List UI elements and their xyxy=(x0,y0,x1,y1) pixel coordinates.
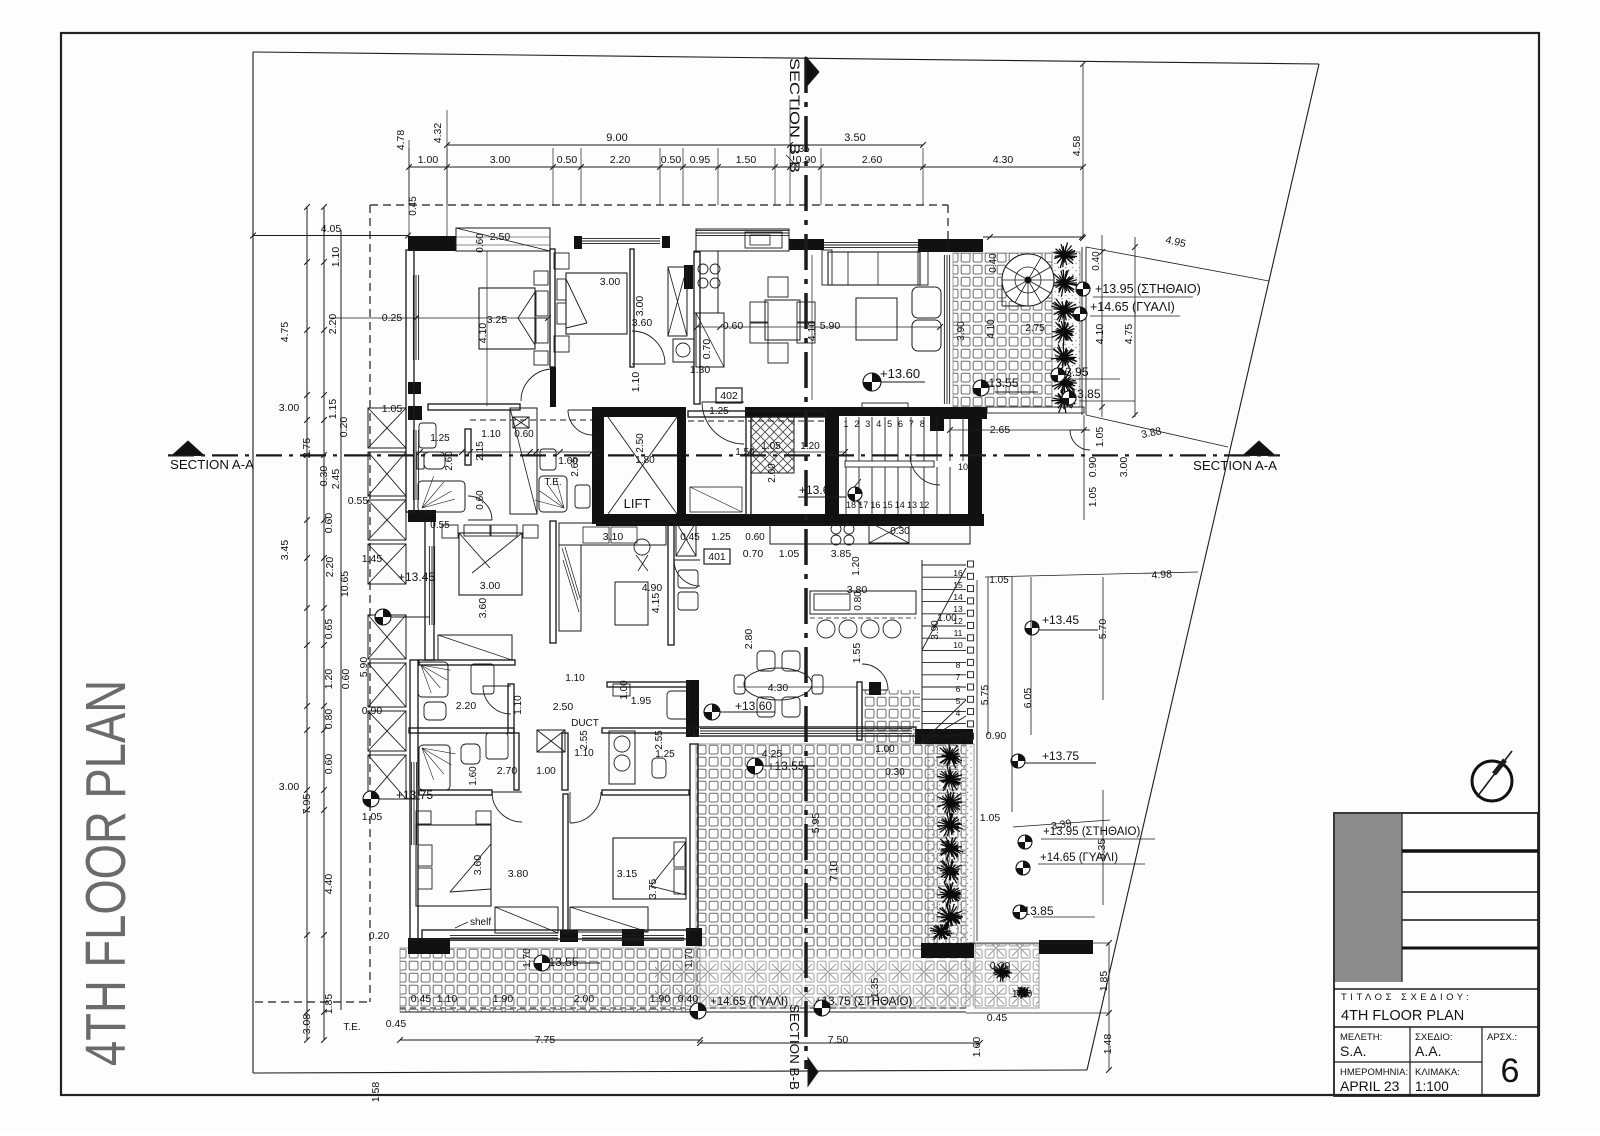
svg-text:4.98: 4.98 xyxy=(1151,568,1172,581)
svg-text:2.60: 2.60 xyxy=(444,451,455,471)
svg-text:1.25: 1.25 xyxy=(709,406,729,417)
svg-text:1.90: 1.90 xyxy=(650,993,671,1005)
svg-text:3.00: 3.00 xyxy=(490,154,511,166)
svg-text:2.50: 2.50 xyxy=(553,701,574,713)
svg-text:0.35: 0.35 xyxy=(790,144,810,155)
svg-text:4.78: 4.78 xyxy=(395,130,407,151)
svg-text:0.55: 0.55 xyxy=(430,520,450,531)
svg-text:3.25: 3.25 xyxy=(487,314,508,326)
svg-text:SECTION B-B: SECTION B-B xyxy=(787,1004,802,1090)
svg-text:2.50: 2.50 xyxy=(490,231,511,243)
svg-text:ΑΡΣΧ.:: ΑΡΣΧ.: xyxy=(1487,1032,1517,1043)
svg-text:A.A.: A.A. xyxy=(1415,1043,1441,1059)
svg-text:10: 10 xyxy=(953,640,963,650)
svg-text:0.80: 0.80 xyxy=(323,709,335,730)
svg-text:14: 14 xyxy=(895,500,905,510)
svg-text:1.05: 1.05 xyxy=(980,812,1001,824)
svg-text:+14.65 (ΓΥΑΛΙ): +14.65 (ΓΥΑΛΙ) xyxy=(710,996,788,1008)
svg-text:2.00: 2.00 xyxy=(767,463,778,483)
svg-text:0.45: 0.45 xyxy=(680,532,700,543)
svg-text:401: 401 xyxy=(708,551,726,563)
svg-text:1.80: 1.80 xyxy=(635,455,655,466)
svg-text:7: 7 xyxy=(909,419,914,429)
svg-text:2.75: 2.75 xyxy=(1025,323,1045,334)
svg-text:0.95: 0.95 xyxy=(690,154,711,166)
svg-text:4.30: 4.30 xyxy=(768,682,789,694)
svg-text:0.65: 0.65 xyxy=(323,619,335,640)
svg-text:1.00: 1.00 xyxy=(418,154,439,166)
svg-text:0.60: 0.60 xyxy=(745,532,765,543)
svg-text:1.10: 1.10 xyxy=(565,673,585,684)
svg-text:APRIL 23: APRIL 23 xyxy=(1340,1078,1400,1094)
svg-text:3.75: 3.75 xyxy=(647,879,659,900)
svg-text:4.15: 4.15 xyxy=(650,593,662,614)
svg-text:ΜΕΛΕΤΗ:: ΜΕΛΕΤΗ: xyxy=(1340,1032,1382,1043)
svg-text:1.10: 1.10 xyxy=(437,993,458,1005)
svg-text:0.55: 0.55 xyxy=(348,495,369,507)
svg-text:S.A.: S.A. xyxy=(1340,1043,1366,1059)
svg-text:3.60: 3.60 xyxy=(472,855,484,876)
svg-text:4.10: 4.10 xyxy=(806,321,818,342)
svg-text:1.48: 1.48 xyxy=(1102,1034,1114,1055)
svg-text:+14.65 (ΓΥΑΛΙ): +14.65 (ΓΥΑΛΙ) xyxy=(1040,852,1118,864)
svg-text:1.95: 1.95 xyxy=(631,695,652,707)
svg-text:1.70: 1.70 xyxy=(522,948,533,968)
svg-text:0.60: 0.60 xyxy=(340,669,352,690)
svg-text:2.00: 2.00 xyxy=(574,993,595,1005)
svg-text:2.60: 2.60 xyxy=(862,154,883,166)
svg-text:3.80: 3.80 xyxy=(508,868,529,880)
svg-text:DUCT: DUCT xyxy=(571,718,599,729)
svg-text:4.32: 4.32 xyxy=(432,123,444,144)
svg-text:7.10: 7.10 xyxy=(828,861,840,882)
svg-text:6: 6 xyxy=(898,419,903,429)
svg-text:2.55: 2.55 xyxy=(579,730,590,750)
svg-text:0.60: 0.60 xyxy=(323,513,335,534)
svg-text:2.65: 2.65 xyxy=(570,457,581,477)
svg-text:2.80: 2.80 xyxy=(743,629,755,650)
svg-text:3.00: 3.00 xyxy=(279,402,300,414)
svg-text:7.95: 7.95 xyxy=(301,794,313,815)
svg-text:402: 402 xyxy=(720,390,738,402)
svg-text:ΤΙΤΛΟΣ ΣΧΕΔΙΟΥ:: ΤΙΤΛΟΣ ΣΧΕΔΙΟΥ: xyxy=(1341,992,1472,1003)
svg-text:5.90: 5.90 xyxy=(358,657,370,678)
svg-text:0.45: 0.45 xyxy=(408,196,419,216)
svg-text:0.90: 0.90 xyxy=(362,705,383,717)
svg-text:3.00: 3.00 xyxy=(279,781,300,793)
svg-text:1.20: 1.20 xyxy=(323,669,335,690)
svg-text:1.58: 1.58 xyxy=(370,1082,382,1103)
svg-text:1.10: 1.10 xyxy=(513,695,524,715)
svg-text:0.70: 0.70 xyxy=(701,339,713,360)
svg-text:4TH FLOOR PLAN: 4TH FLOOR PLAN xyxy=(1341,1008,1464,1024)
svg-text:SECTION A-A: SECTION A-A xyxy=(170,457,254,472)
svg-text:+13.75: +13.75 xyxy=(396,788,433,802)
svg-text:1.05: 1.05 xyxy=(382,403,403,415)
svg-text:5: 5 xyxy=(887,419,892,429)
svg-text:9: 9 xyxy=(931,419,936,429)
svg-text:3.00: 3.00 xyxy=(634,296,646,317)
svg-text:8: 8 xyxy=(956,660,961,670)
svg-text:4.40: 4.40 xyxy=(323,874,335,895)
svg-text:1.05: 1.05 xyxy=(761,441,781,452)
svg-text:1.25: 1.25 xyxy=(430,433,450,444)
svg-text:2.20: 2.20 xyxy=(327,314,339,335)
svg-text:3.10: 3.10 xyxy=(603,531,624,543)
svg-text:1.10: 1.10 xyxy=(574,748,594,759)
svg-text:1.60: 1.60 xyxy=(971,1037,983,1058)
svg-text:0.70: 0.70 xyxy=(743,548,764,560)
svg-text:1.50: 1.50 xyxy=(736,154,757,166)
svg-text:1.30: 1.30 xyxy=(690,364,711,376)
svg-text:2.75: 2.75 xyxy=(301,438,313,459)
svg-text:+13.60: +13.60 xyxy=(880,366,920,381)
svg-text:1.15: 1.15 xyxy=(327,399,339,420)
svg-text:0.60: 0.60 xyxy=(723,320,744,332)
svg-text:1.55: 1.55 xyxy=(851,643,863,664)
svg-text:+13.75: +13.75 xyxy=(1042,749,1079,763)
svg-text:1:100: 1:100 xyxy=(1415,1079,1449,1094)
svg-text:+13.60: +13.60 xyxy=(799,483,836,497)
svg-text:+14.65 (ΓΥΑΛΙ): +14.65 (ΓΥΑΛΙ) xyxy=(1090,300,1175,314)
svg-text:3.90: 3.90 xyxy=(956,321,967,341)
svg-text:1.85: 1.85 xyxy=(323,994,335,1015)
svg-text:0.20: 0.20 xyxy=(338,417,350,438)
svg-text:1.00: 1.00 xyxy=(875,744,895,755)
svg-text:6: 6 xyxy=(956,684,961,694)
svg-text:1.10: 1.10 xyxy=(1012,988,1033,1000)
svg-text:ΣΧΕΔΙΟ:: ΣΧΕΔΙΟ: xyxy=(1415,1032,1453,1043)
svg-text:3.08: 3.08 xyxy=(301,1014,313,1035)
svg-text:2.50: 2.50 xyxy=(635,433,646,453)
svg-text:2.20: 2.20 xyxy=(324,557,336,578)
svg-text:4.90: 4.90 xyxy=(642,582,663,594)
svg-text:10.65: 10.65 xyxy=(339,571,351,597)
svg-text:0.50: 0.50 xyxy=(661,154,682,166)
svg-text:1.10: 1.10 xyxy=(481,429,501,440)
svg-text:1.10: 1.10 xyxy=(630,372,642,393)
svg-text:1.20: 1.20 xyxy=(800,441,820,452)
svg-text:0.20: 0.20 xyxy=(990,960,1011,972)
svg-text:4.10: 4.10 xyxy=(986,319,997,339)
svg-text:4.05: 4.05 xyxy=(321,223,342,235)
svg-text:3: 3 xyxy=(865,419,870,429)
svg-text:Τ.Ε.: Τ.Ε. xyxy=(544,477,561,488)
svg-text:0.90: 0.90 xyxy=(986,730,1007,742)
svg-text:0.45: 0.45 xyxy=(386,1018,407,1030)
svg-text:3.00: 3.00 xyxy=(1118,457,1130,478)
svg-text:1.25: 1.25 xyxy=(655,749,675,760)
svg-text:13: 13 xyxy=(907,500,917,510)
svg-text:2: 2 xyxy=(854,419,859,429)
svg-text:0.90: 0.90 xyxy=(1087,457,1099,478)
svg-text:+13.45: +13.45 xyxy=(398,570,435,584)
svg-text:3.45: 3.45 xyxy=(279,540,291,561)
svg-text:10: 10 xyxy=(958,462,968,472)
svg-text:3.00: 3.00 xyxy=(600,276,621,288)
svg-text:11: 11 xyxy=(954,628,963,638)
svg-text:6.05: 6.05 xyxy=(1022,688,1034,709)
svg-text:1.70: 1.70 xyxy=(684,948,695,968)
svg-text:12: 12 xyxy=(919,500,929,510)
svg-text:5.75: 5.75 xyxy=(979,685,991,706)
svg-text:0.60: 0.60 xyxy=(323,754,335,775)
svg-text:1.10: 1.10 xyxy=(330,247,342,268)
svg-text:1.45: 1.45 xyxy=(362,553,383,565)
svg-text:0.30: 0.30 xyxy=(318,466,330,487)
svg-text:0.45: 0.45 xyxy=(987,1012,1008,1024)
svg-text:0.60: 0.60 xyxy=(475,490,486,510)
svg-text:5.90: 5.90 xyxy=(820,320,841,332)
svg-text:4.30: 4.30 xyxy=(993,154,1014,166)
svg-text:0.30: 0.30 xyxy=(890,526,910,537)
svg-text:7: 7 xyxy=(956,672,961,682)
svg-text:4TH FLOOR PLAN: 4TH FLOOR PLAN xyxy=(74,680,138,1066)
svg-text:4.75: 4.75 xyxy=(279,322,291,343)
svg-text:4.58: 4.58 xyxy=(1071,136,1083,157)
svg-text:2.15: 2.15 xyxy=(475,441,486,461)
svg-text:1.05: 1.05 xyxy=(362,811,383,823)
svg-text:0.40: 0.40 xyxy=(988,253,999,273)
svg-text:0.80: 0.80 xyxy=(853,591,864,611)
svg-text:0.30: 0.30 xyxy=(885,767,905,778)
svg-text:5.95: 5.95 xyxy=(810,813,822,834)
svg-text:0.50: 0.50 xyxy=(557,154,578,166)
svg-text:SECTION A-A: SECTION A-A xyxy=(1193,458,1277,473)
svg-text:2.20: 2.20 xyxy=(610,154,631,166)
svg-text:3.00: 3.00 xyxy=(480,580,501,592)
svg-text:1.85: 1.85 xyxy=(1098,971,1110,992)
svg-text:4.10: 4.10 xyxy=(1094,324,1106,345)
svg-text:Τ.Ε.: Τ.Ε. xyxy=(343,1022,360,1033)
svg-text:3.90: 3.90 xyxy=(930,620,941,640)
svg-text:6: 6 xyxy=(1501,1052,1520,1090)
svg-text:ΚΛΙΜΑΚΑ:: ΚΛΙΜΑΚΑ: xyxy=(1415,1067,1460,1078)
svg-text:3.85: 3.85 xyxy=(831,548,852,560)
svg-text:16: 16 xyxy=(870,500,880,510)
svg-text:1.90: 1.90 xyxy=(493,993,514,1005)
svg-text:1.25: 1.25 xyxy=(711,532,731,543)
svg-text:3.60: 3.60 xyxy=(477,598,489,619)
svg-text:2.50: 2.50 xyxy=(830,448,841,468)
svg-text:15: 15 xyxy=(883,500,893,510)
svg-text:4: 4 xyxy=(876,419,881,429)
svg-text:8: 8 xyxy=(920,419,925,429)
svg-text:4.10: 4.10 xyxy=(477,323,489,344)
svg-text:1.60: 1.60 xyxy=(468,766,479,786)
svg-text:1.20: 1.20 xyxy=(851,556,862,576)
svg-text:14: 14 xyxy=(953,592,963,602)
svg-text:0.45: 0.45 xyxy=(411,993,432,1005)
svg-text:+13.45: +13.45 xyxy=(1042,613,1079,627)
svg-text:LIFT: LIFT xyxy=(624,496,651,511)
svg-text:2.45: 2.45 xyxy=(330,469,342,490)
svg-text:1.05: 1.05 xyxy=(1087,487,1099,508)
svg-text:+13.60: +13.60 xyxy=(735,699,772,713)
svg-text:1.05: 1.05 xyxy=(1094,427,1106,448)
svg-text:9.00: 9.00 xyxy=(606,132,627,144)
svg-text:3.60: 3.60 xyxy=(632,317,653,329)
svg-text:3.50: 3.50 xyxy=(844,132,865,144)
svg-text:17: 17 xyxy=(858,500,868,510)
svg-text:2.70: 2.70 xyxy=(497,765,518,777)
svg-text:0.20: 0.20 xyxy=(369,930,390,942)
svg-text:1.00: 1.00 xyxy=(619,680,630,700)
svg-text:0.60: 0.60 xyxy=(514,429,534,440)
svg-text:2.55: 2.55 xyxy=(654,730,665,750)
svg-text:0.60: 0.60 xyxy=(475,233,486,253)
svg-text:shelf: shelf xyxy=(470,917,491,928)
svg-text:1.00: 1.00 xyxy=(536,766,556,777)
svg-text:1.05: 1.05 xyxy=(779,548,800,560)
svg-text:0.90: 0.90 xyxy=(796,154,817,166)
svg-text:3.15: 3.15 xyxy=(617,868,638,880)
svg-text:7.50: 7.50 xyxy=(828,1034,849,1046)
svg-text:2.20: 2.20 xyxy=(456,700,477,712)
svg-text:4.75: 4.75 xyxy=(1123,324,1135,345)
svg-text:1: 1 xyxy=(843,419,848,429)
svg-text:+13.95 (ΣΤΗΘΑΙΟ): +13.95 (ΣΤΗΘΑΙΟ) xyxy=(1095,282,1201,296)
svg-text:ΗΜΕΡΟΜΗΝΙΑ:: ΗΜΕΡΟΜΗΝΙΑ: xyxy=(1340,1067,1408,1078)
svg-text:5: 5 xyxy=(956,696,961,706)
svg-text:1.50: 1.50 xyxy=(735,447,755,458)
